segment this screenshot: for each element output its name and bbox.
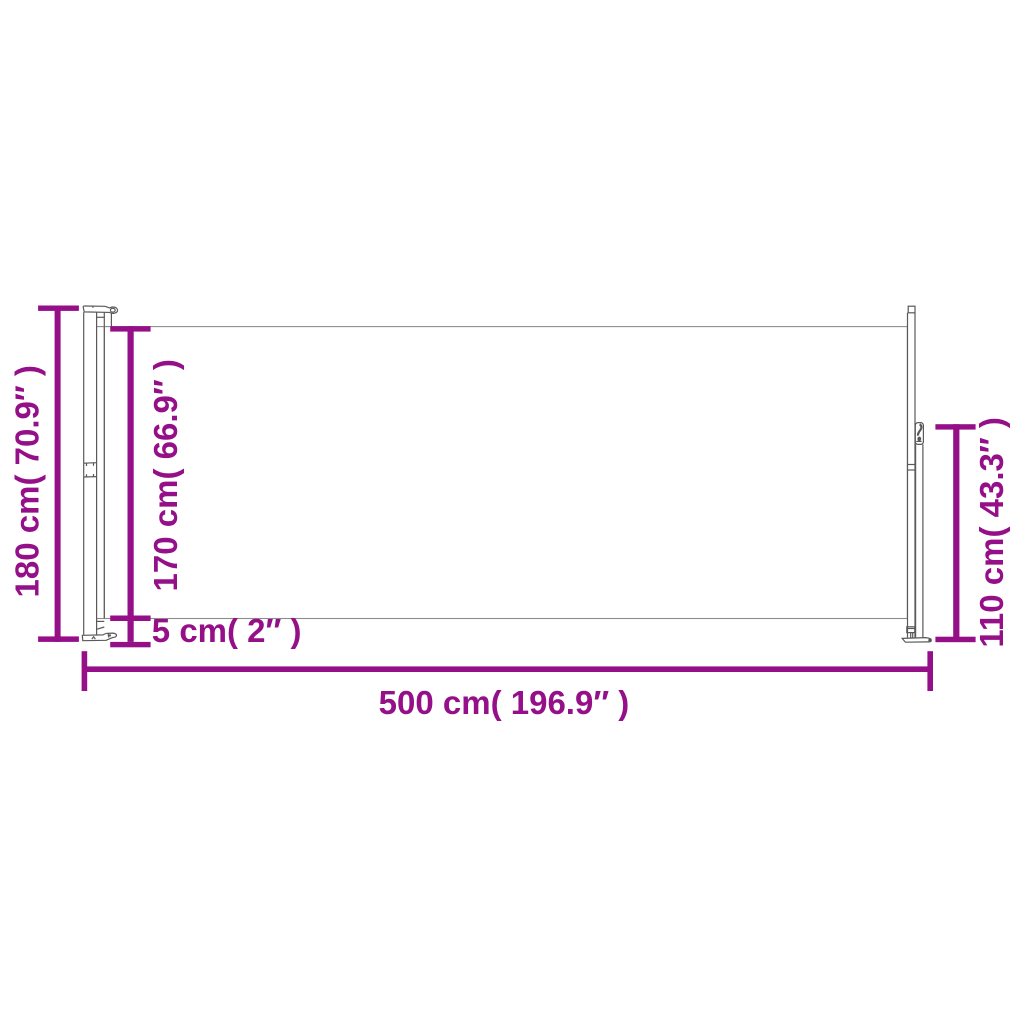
svg-text:5 cm( 2″ ): 5 cm( 2″ ) xyxy=(152,612,302,649)
svg-text:180 cm( 70.9″ ): 180 cm( 70.9″ ) xyxy=(9,365,46,597)
svg-text:170 cm( 66.9″ ): 170 cm( 66.9″ ) xyxy=(147,359,184,591)
svg-text:110 cm( 43.3″ ): 110 cm( 43.3″ ) xyxy=(973,417,1010,647)
svg-text:500 cm( 196.9″ ): 500 cm( 196.9″ ) xyxy=(379,684,630,721)
